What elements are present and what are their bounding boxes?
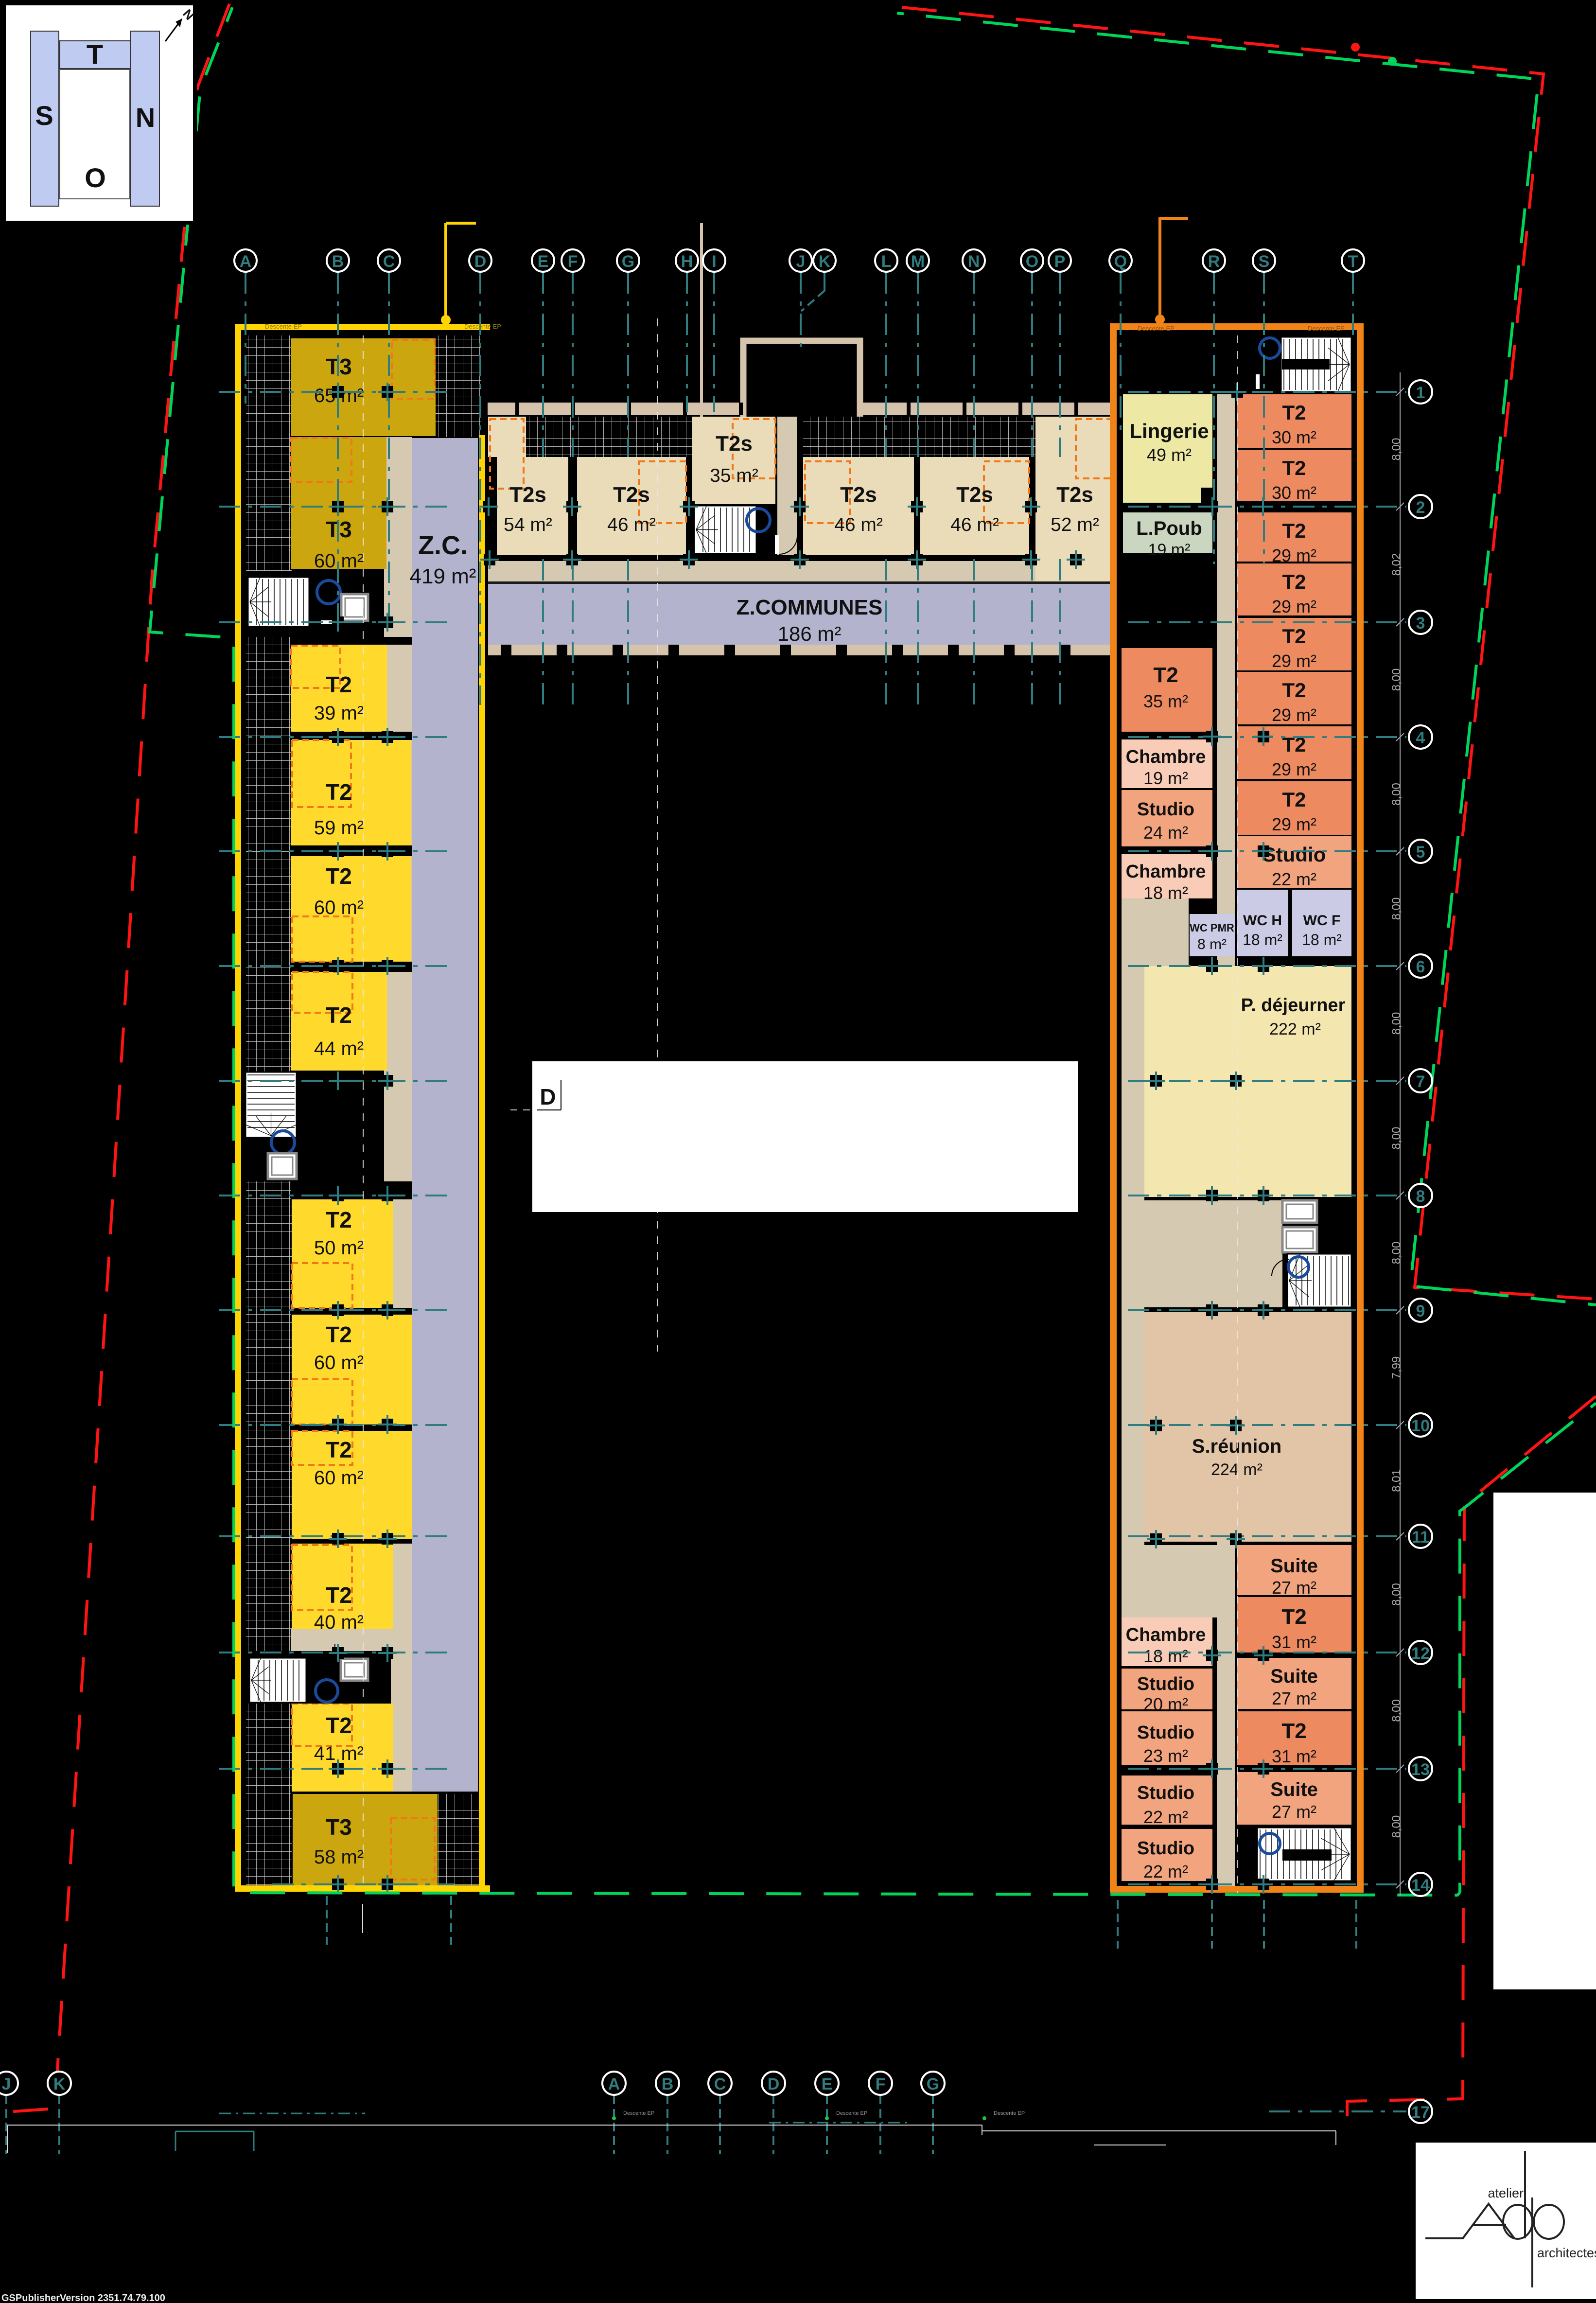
svg-text:22 m²: 22 m² <box>1143 1807 1188 1827</box>
svg-text:architectes: architectes <box>1537 2246 1596 2260</box>
svg-text:222 m²: 222 m² <box>1269 1020 1321 1038</box>
svg-text:R: R <box>1208 252 1220 271</box>
svg-text:GSPublisherVersion 2351.74.79.: GSPublisherVersion 2351.74.79.100 <box>1 2293 165 2303</box>
svg-text:E: E <box>538 252 549 271</box>
svg-text:M: M <box>911 252 925 271</box>
svg-text:T2: T2 <box>1282 788 1306 811</box>
svg-text:P: P <box>1054 252 1066 271</box>
svg-text:Studio: Studio <box>1137 1674 1194 1694</box>
svg-text:WC F: WC F <box>1303 913 1341 929</box>
svg-text:8,00: 8,00 <box>1390 897 1403 920</box>
svg-text:58 m²: 58 m² <box>314 1846 364 1868</box>
svg-text:29 m²: 29 m² <box>1272 597 1316 616</box>
svg-text:T2: T2 <box>1282 401 1306 424</box>
svg-text:T2: T2 <box>1282 519 1306 542</box>
svg-text:Lingerie: Lingerie <box>1129 420 1209 442</box>
svg-text:8,00: 8,00 <box>1390 438 1403 461</box>
svg-text:52 m²: 52 m² <box>1051 514 1099 535</box>
svg-text:Z.COMMUNES: Z.COMMUNES <box>737 596 883 619</box>
svg-text:49 m²: 49 m² <box>1147 445 1192 465</box>
svg-text:8 m²: 8 m² <box>1197 936 1227 952</box>
svg-text:C: C <box>383 252 395 271</box>
svg-text:60 m²: 60 m² <box>314 1352 364 1373</box>
svg-text:8,01: 8,01 <box>1390 1469 1403 1492</box>
svg-text:186 m²: 186 m² <box>778 622 842 645</box>
svg-text:T2: T2 <box>1282 457 1306 479</box>
svg-text:29 m²: 29 m² <box>1272 705 1316 725</box>
svg-text:T3: T3 <box>326 1814 352 1840</box>
svg-text:T: T <box>1348 252 1358 271</box>
svg-text:8,00: 8,00 <box>1390 1699 1403 1722</box>
svg-text:Descente EP: Descente EP <box>1138 325 1175 332</box>
svg-text:T2: T2 <box>326 1437 352 1462</box>
svg-text:Z.C.: Z.C. <box>418 531 468 560</box>
svg-text:S: S <box>35 100 53 131</box>
svg-text:419 m²: 419 m² <box>410 564 476 588</box>
svg-text:19 m²: 19 m² <box>1143 768 1188 788</box>
svg-text:J: J <box>796 252 806 271</box>
svg-text:5: 5 <box>1416 843 1425 861</box>
svg-text:F: F <box>876 2075 886 2093</box>
svg-text:13: 13 <box>1411 1760 1430 1779</box>
svg-text:35 m²: 35 m² <box>1143 691 1188 711</box>
svg-text:C: C <box>714 2075 726 2093</box>
svg-text:54 m²: 54 m² <box>504 514 552 535</box>
svg-text:1: 1 <box>1416 384 1425 402</box>
svg-text:L: L <box>881 252 892 271</box>
svg-text:WC H: WC H <box>1243 913 1282 929</box>
svg-text:7: 7 <box>1416 1072 1425 1091</box>
svg-text:17: 17 <box>1411 2103 1430 2122</box>
svg-text:224 m²: 224 m² <box>1211 1460 1263 1479</box>
svg-text:H: H <box>681 252 693 271</box>
svg-text:A: A <box>608 2075 620 2093</box>
svg-text:18 m²: 18 m² <box>1302 931 1342 949</box>
svg-text:22 m²: 22 m² <box>1272 869 1316 889</box>
svg-text:O: O <box>85 162 106 193</box>
svg-text:10: 10 <box>1411 1417 1430 1435</box>
svg-text:Suite: Suite <box>1270 1779 1318 1800</box>
svg-text:11: 11 <box>1412 1528 1429 1547</box>
svg-text:39 m²: 39 m² <box>314 703 364 724</box>
svg-text:T2s: T2s <box>956 483 993 507</box>
svg-text:4: 4 <box>1416 729 1425 747</box>
svg-text:31 m²: 31 m² <box>1272 1746 1316 1766</box>
svg-text:60 m²: 60 m² <box>314 1467 364 1489</box>
svg-text:T2: T2 <box>326 1207 352 1232</box>
svg-text:T2s: T2s <box>840 483 877 507</box>
svg-text:T2s: T2s <box>1056 483 1093 507</box>
svg-text:Q: Q <box>1114 252 1127 271</box>
svg-text:T: T <box>87 39 103 70</box>
svg-text:22 m²: 22 m² <box>1143 1862 1188 1881</box>
svg-text:46 m²: 46 m² <box>950 514 999 535</box>
svg-text:O: O <box>1026 252 1038 271</box>
svg-text:L.Poub: L.Poub <box>1136 518 1202 539</box>
svg-text:30 m²: 30 m² <box>1272 483 1316 503</box>
svg-text:Descente EP: Descente EP <box>464 323 501 330</box>
svg-text:9: 9 <box>1416 1302 1425 1320</box>
svg-text:Descente EP: Descente EP <box>1308 325 1345 332</box>
svg-text:Studio: Studio <box>1137 1723 1194 1743</box>
svg-text:Suite: Suite <box>1270 1666 1318 1687</box>
svg-text:T2: T2 <box>1282 679 1306 702</box>
svg-text:T2: T2 <box>326 672 352 697</box>
svg-text:Descente EP: Descente EP <box>265 323 302 330</box>
svg-text:I: I <box>712 252 716 271</box>
svg-text:S: S <box>1259 252 1270 271</box>
svg-text:8,00: 8,00 <box>1390 1127 1403 1150</box>
svg-text:D: D <box>540 1084 556 1109</box>
svg-text:60 m²: 60 m² <box>314 897 364 918</box>
svg-text:3: 3 <box>1416 614 1425 633</box>
svg-text:WC PMR: WC PMR <box>1190 922 1234 934</box>
svg-text:T2: T2 <box>1282 570 1306 593</box>
svg-text:T2: T2 <box>326 1002 352 1028</box>
svg-text:F: F <box>568 252 578 271</box>
svg-text:Studio: Studio <box>1263 843 1326 866</box>
svg-text:T2: T2 <box>1153 663 1178 687</box>
svg-text:29 m²: 29 m² <box>1272 651 1316 671</box>
svg-text:44 m²: 44 m² <box>314 1038 364 1059</box>
svg-text:18 m²: 18 m² <box>1243 931 1282 949</box>
svg-text:8,00: 8,00 <box>1390 1242 1403 1265</box>
svg-text:8,00: 8,00 <box>1390 1583 1403 1606</box>
svg-text:Suite: Suite <box>1270 1555 1318 1577</box>
svg-text:18 m²: 18 m² <box>1143 1646 1188 1666</box>
svg-text:2: 2 <box>1416 498 1425 517</box>
svg-text:atelier: atelier <box>1488 2186 1524 2200</box>
svg-text:T2: T2 <box>326 1582 352 1608</box>
svg-text:20 m²: 20 m² <box>1143 1694 1188 1714</box>
svg-text:8,00: 8,00 <box>1390 1012 1403 1035</box>
svg-text:23 m²: 23 m² <box>1143 1746 1188 1766</box>
svg-text:8,02: 8,02 <box>1390 553 1403 576</box>
svg-text:27 m²: 27 m² <box>1272 1578 1316 1598</box>
svg-text:P. déjeurner: P. déjeurner <box>1241 995 1346 1016</box>
svg-text:E: E <box>822 2075 833 2093</box>
svg-text:6: 6 <box>1416 958 1425 976</box>
svg-text:T2: T2 <box>326 779 352 805</box>
svg-text:D: D <box>768 2075 780 2093</box>
svg-text:T2s: T2s <box>716 432 753 456</box>
svg-text:T2s: T2s <box>509 483 546 507</box>
svg-text:S.réunion: S.réunion <box>1192 1436 1281 1457</box>
svg-text:T2: T2 <box>326 863 352 889</box>
svg-text:30 m²: 30 m² <box>1272 427 1316 447</box>
svg-text:8,00: 8,00 <box>1390 668 1403 691</box>
svg-text:27 m²: 27 m² <box>1272 1688 1316 1708</box>
svg-text:24 m²: 24 m² <box>1143 823 1188 843</box>
svg-text:A: A <box>240 252 252 271</box>
svg-text:29 m²: 29 m² <box>1272 759 1316 779</box>
svg-text:29 m²: 29 m² <box>1272 545 1316 565</box>
svg-text:B: B <box>332 252 344 271</box>
svg-text:D: D <box>474 252 487 271</box>
svg-text:G: G <box>927 2075 939 2093</box>
svg-text:19 m²: 19 m² <box>1148 541 1191 559</box>
svg-text:Chambre: Chambre <box>1126 1625 1206 1645</box>
svg-text:46 m²: 46 m² <box>607 514 656 535</box>
svg-text:7,99: 7,99 <box>1390 1356 1403 1379</box>
svg-text:T2: T2 <box>1281 1605 1306 1629</box>
svg-text:14: 14 <box>1411 1876 1430 1895</box>
svg-text:8,00: 8,00 <box>1390 783 1403 806</box>
svg-text:T2: T2 <box>1282 625 1306 648</box>
svg-text:31 m²: 31 m² <box>1272 1632 1316 1652</box>
svg-text:29 m²: 29 m² <box>1272 814 1316 834</box>
svg-text:35 m²: 35 m² <box>710 465 758 486</box>
svg-text:8,00: 8,00 <box>1390 1815 1403 1838</box>
svg-text:T2: T2 <box>326 1322 352 1347</box>
svg-text:Studio: Studio <box>1137 1783 1194 1803</box>
svg-text:G: G <box>622 252 634 271</box>
svg-text:N: N <box>968 252 980 271</box>
svg-text:N: N <box>136 102 155 133</box>
svg-text:59 m²: 59 m² <box>314 817 364 839</box>
svg-text:27 m²: 27 m² <box>1272 1802 1316 1822</box>
svg-text:12: 12 <box>1411 1644 1430 1663</box>
svg-text:Descente EP: Descente EP <box>836 2110 867 2116</box>
svg-text:40 m²: 40 m² <box>314 1612 364 1633</box>
svg-text:K: K <box>53 2075 66 2093</box>
svg-text:Chambre: Chambre <box>1126 747 1206 767</box>
svg-text:Descente EP: Descente EP <box>623 2110 654 2116</box>
svg-text:K: K <box>819 252 831 271</box>
svg-text:T2: T2 <box>1281 1719 1306 1743</box>
svg-text:T2s: T2s <box>613 483 650 507</box>
svg-text:50 m²: 50 m² <box>314 1237 364 1259</box>
svg-text:B: B <box>662 2075 674 2093</box>
svg-text:18 m²: 18 m² <box>1143 883 1188 903</box>
svg-text:Chambre: Chambre <box>1126 861 1206 882</box>
svg-text:Studio: Studio <box>1137 1838 1194 1859</box>
svg-text:Descente EP: Descente EP <box>994 2110 1025 2116</box>
svg-text:J: J <box>2 2075 11 2093</box>
svg-text:T2: T2 <box>326 1713 352 1738</box>
svg-text:46 m²: 46 m² <box>834 514 883 535</box>
svg-text:8: 8 <box>1416 1187 1425 1206</box>
svg-text:Studio: Studio <box>1137 799 1194 820</box>
